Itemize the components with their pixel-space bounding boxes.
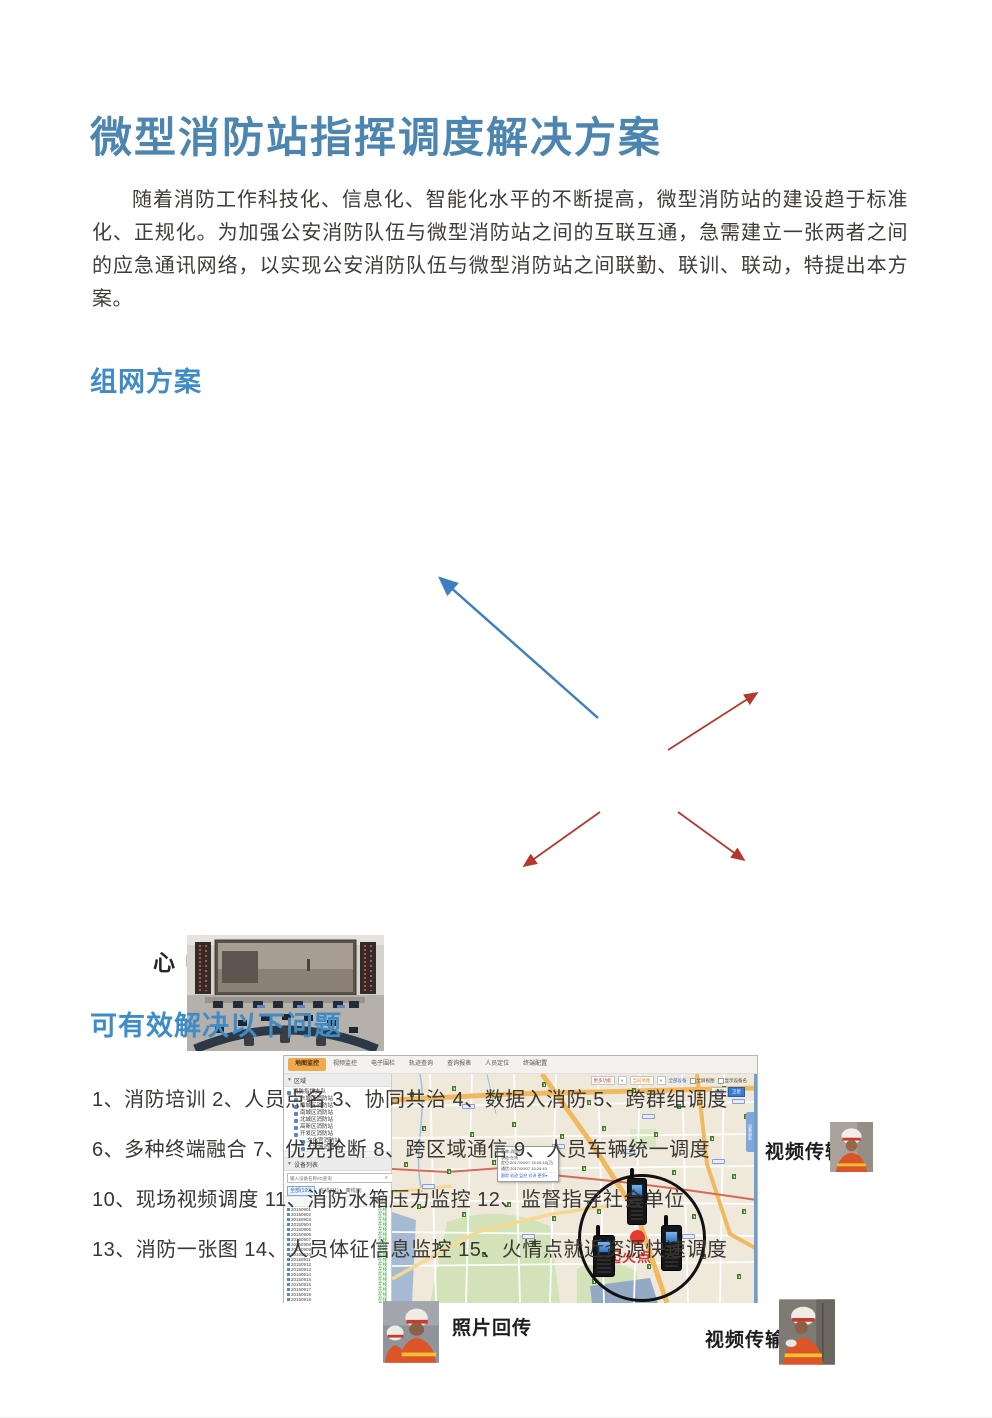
problem-line: 13、消防一张图 14、人员体征信息监控 15、火情点就近资源快速调度 — [92, 1236, 922, 1264]
collapse-icon: ▼ — [287, 1077, 292, 1083]
video-transfer-arrow-top — [668, 693, 757, 750]
show-names-checkbox[interactable]: 显示设备名 — [718, 1078, 748, 1084]
photo-return-arrow — [524, 812, 600, 866]
network-diagram: 指挥中心 — [0, 455, 992, 935]
firefighter-photo-bottom-right — [779, 1299, 835, 1365]
problem-line: 10、现场视频调度 11、消防水箱压力监控 12、监督指导社会单位 — [92, 1186, 922, 1214]
region-panel-title: 区域 — [294, 1076, 306, 1085]
section-heading-problems: 可有效解决以下问题 — [90, 1004, 342, 1043]
checkbox-icon — [718, 1078, 724, 1084]
menu-tab[interactable]: 电子围栏 — [364, 1058, 402, 1071]
video-to-center-arrow — [440, 578, 598, 718]
software-menu-bar: 地图监控 视频监控 电子围栏 轨迹查询 查询报表 人员定位 终端配置 — [284, 1056, 757, 1074]
document-page: 微型消防站指挥调度解决方案 随着消防工作科技化、信息化、智能化水平的不断提高，微… — [0, 0, 992, 1418]
all-devices-link[interactable]: 全部设备 — [669, 1078, 687, 1084]
intro-paragraph: 随着消防工作科技化、信息化、智能化水平的不断提高，微型消防站的建设趋于标准化、正… — [92, 184, 908, 316]
map-toolbar: 更多功能 ▾ 当前地图 ▾ 全部设备 全屏视图 显示设备名 — [591, 1076, 748, 1085]
more-functions-dropdown[interactable]: 更多功能 — [591, 1076, 615, 1085]
fullscreen-checkbox[interactable]: 全屏视图 — [690, 1078, 715, 1084]
device-row[interactable]: 20150920 在线 — [284, 1302, 391, 1303]
menu-tab[interactable]: 终端配置 — [516, 1058, 554, 1071]
video-transfer-label-bottom: 视频传输 — [705, 1325, 785, 1352]
firefighter-photo-bottom-left — [383, 1301, 439, 1363]
page-title: 微型消防站指挥调度解决方案 — [90, 104, 662, 165]
problem-list: 1、消防培训 2、人员点名 3、协同共治 4、数据入消防 5、跨群组调度 6、多… — [92, 1086, 922, 1286]
problem-line: 6、多种终端融合 7、优先抢断 8、跨区域通信 9、人员车辆统一调度 — [92, 1136, 922, 1164]
menu-tab[interactable]: 视频监控 — [326, 1058, 364, 1071]
dropdown-arrow-icon[interactable]: ▾ — [618, 1076, 627, 1085]
basemap-dropdown[interactable]: 当前地图 — [630, 1076, 654, 1085]
video-transfer-arrow-bottom — [678, 812, 744, 860]
problem-line: 1、消防培训 2、人员点名 3、协同共治 4、数据入消防 5、跨群组调度 — [92, 1086, 922, 1114]
dropdown-arrow-icon[interactable]: ▾ — [657, 1076, 666, 1085]
section-heading-network: 组网方案 — [90, 360, 202, 399]
menu-tab[interactable]: 查询报表 — [440, 1058, 478, 1071]
menu-tab[interactable]: 地图监控 — [288, 1058, 326, 1071]
menu-tab[interactable]: 人员定位 — [478, 1058, 516, 1071]
checkbox-icon — [690, 1078, 696, 1084]
menu-tab[interactable]: 轨迹查询 — [402, 1058, 440, 1071]
photo-return-label: 照片回传 — [452, 1313, 532, 1340]
